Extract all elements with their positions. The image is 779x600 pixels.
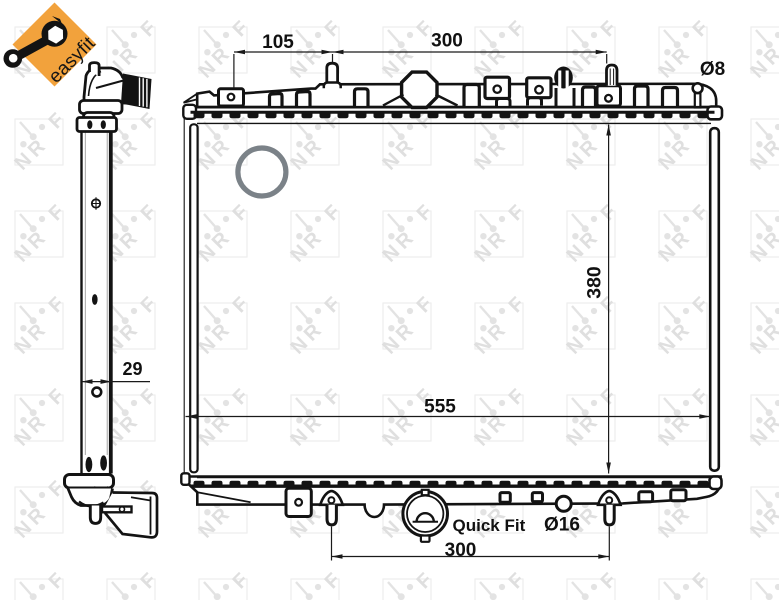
svg-text:105: 105	[262, 32, 294, 53]
svg-text:29: 29	[122, 359, 142, 379]
svg-text:380: 380	[584, 266, 606, 299]
svg-text:555: 555	[424, 397, 456, 418]
svg-text:Ø16: Ø16	[544, 515, 580, 536]
svg-text:Quick Fit: Quick Fit	[453, 516, 526, 535]
svg-text:Ø8: Ø8	[700, 59, 725, 80]
svg-text:300: 300	[431, 31, 463, 52]
svg-text:300: 300	[445, 540, 477, 561]
